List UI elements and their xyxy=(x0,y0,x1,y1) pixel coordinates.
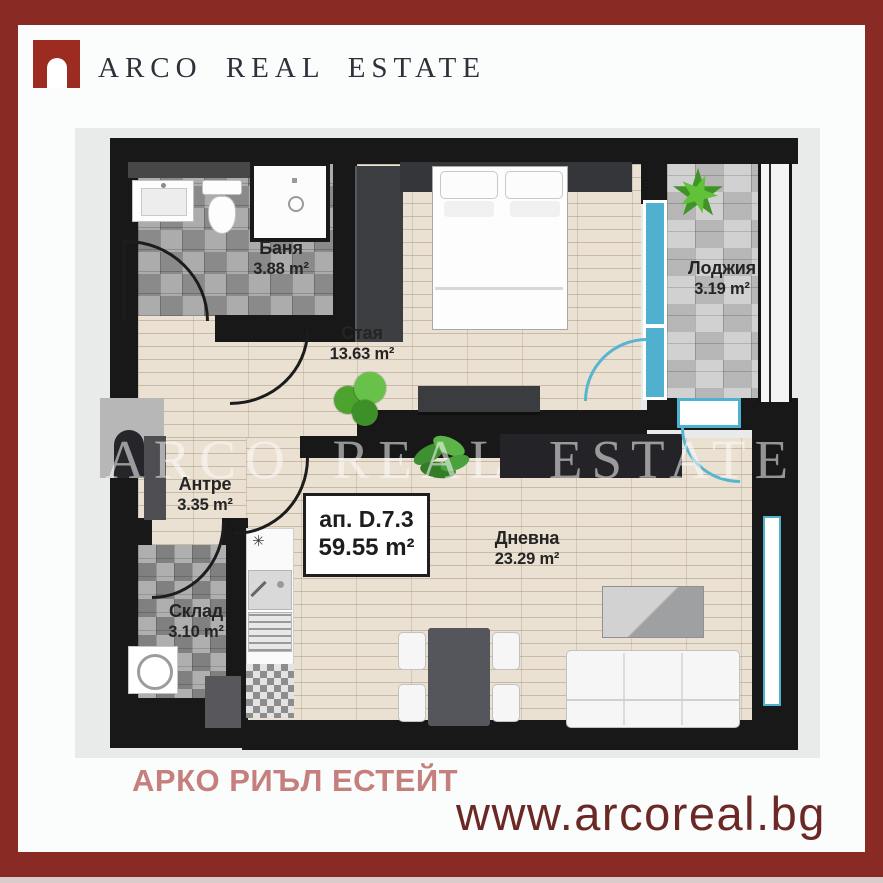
living-room-window xyxy=(763,516,781,706)
chair xyxy=(398,632,426,670)
faucet-icon xyxy=(250,581,266,597)
room-name: Стая xyxy=(302,323,422,344)
brand-logo-text: ARCO REAL ESTATE xyxy=(98,52,486,85)
drain-icon xyxy=(277,581,284,588)
room-area: 3.35 m² xyxy=(145,495,265,516)
room-name: Антре xyxy=(145,474,265,495)
wall xyxy=(110,316,138,402)
pillow xyxy=(505,171,563,199)
room-name: Баня xyxy=(221,238,341,259)
shower-drain-icon xyxy=(288,196,304,212)
vent-icon: ✳ xyxy=(252,532,272,552)
shower-tray xyxy=(250,162,330,242)
agency-name-cyrillic: АРКО РИЪЛ ЕСТЕЙТ xyxy=(132,763,458,799)
apartment-info-box: ап. D.7.3 59.55 m² xyxy=(303,493,430,577)
room-area: 13.63 m² xyxy=(302,344,422,365)
sofa-cushion-divider xyxy=(623,653,625,725)
room-area: 23.29 m² xyxy=(467,549,587,570)
sofa xyxy=(566,650,740,728)
wall xyxy=(110,138,798,164)
window-tick xyxy=(646,324,664,328)
room-label-hallway: Антре 3.35 m² xyxy=(145,474,265,516)
frame-left xyxy=(0,0,18,852)
website-url: www.arcoreal.bg xyxy=(456,786,826,841)
room-label-living: Дневна 23.29 m² xyxy=(467,528,587,570)
room-area: 3.10 m² xyxy=(136,622,256,643)
kitchen-tile-strip xyxy=(246,664,294,718)
tv-stand xyxy=(418,386,540,415)
toilet-tank xyxy=(202,180,242,195)
room-label-loggia: Лоджия 3.19 m² xyxy=(662,258,782,300)
wardrobe xyxy=(355,166,403,342)
washer-door-icon xyxy=(137,654,173,690)
dining-table xyxy=(428,628,490,726)
room-area: 3.88 m² xyxy=(221,259,341,280)
sofa-cushion-divider xyxy=(681,653,683,725)
plant-icon xyxy=(354,372,386,404)
washing-machine xyxy=(128,646,178,694)
arch-icon xyxy=(47,58,67,88)
pillow xyxy=(444,201,494,217)
apartment-label: ап. D.7.3 xyxy=(306,505,427,533)
room-name: Дневна xyxy=(467,528,587,549)
pillow xyxy=(440,171,498,199)
bathroom-shelf xyxy=(128,162,250,178)
room-name: Лоджия xyxy=(662,258,782,279)
pillow xyxy=(510,201,560,217)
frame-right xyxy=(865,0,883,852)
blanket-fold xyxy=(435,287,563,290)
room-area: 3.19 m² xyxy=(662,279,782,300)
frame-bottom-strip xyxy=(0,877,883,883)
sink-basin xyxy=(141,188,187,216)
toilet-bowl xyxy=(208,196,236,234)
arco-logo-mark xyxy=(33,40,80,88)
faucet-icon xyxy=(161,183,166,188)
chair xyxy=(398,684,426,722)
wall xyxy=(110,518,152,545)
chair xyxy=(492,632,520,670)
room-label-bedroom: Стая 13.63 m² xyxy=(302,323,422,365)
frame-bottom xyxy=(0,852,883,877)
wall xyxy=(641,164,667,204)
bathroom-sink xyxy=(132,180,194,222)
shower-mixer-icon xyxy=(292,178,297,183)
room-name: Склад xyxy=(136,601,256,622)
room-label-storage: Склад 3.10 m² xyxy=(136,601,256,643)
room-label-bathroom: Баня 3.88 m² xyxy=(221,238,341,280)
tv-cabinet xyxy=(602,586,704,638)
bed xyxy=(432,166,568,330)
storage-shaft xyxy=(205,676,241,728)
frame-top xyxy=(0,0,883,25)
apartment-area: 59.55 m² xyxy=(306,533,427,563)
property-flyer: ARCO REAL ESTATE xyxy=(0,0,883,883)
sofa-backrest xyxy=(567,699,739,701)
chair xyxy=(492,684,520,722)
